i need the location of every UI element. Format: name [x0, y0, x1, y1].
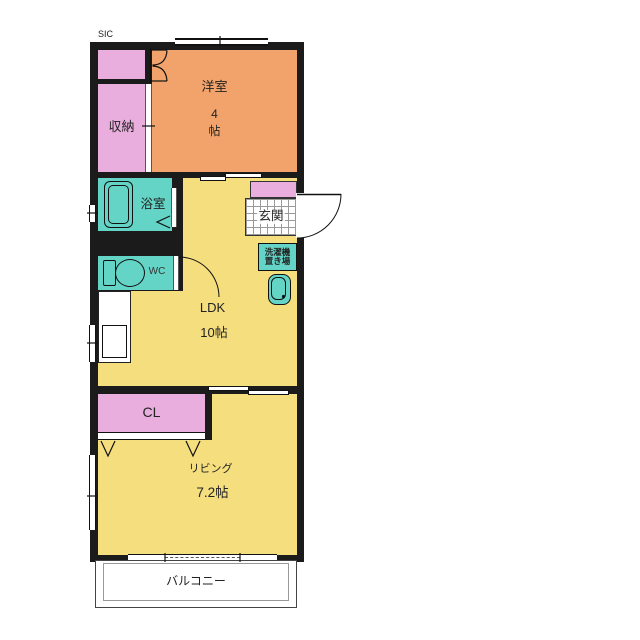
balcony-label: バルコニー: [166, 575, 226, 588]
room-closet: CL: [98, 394, 205, 432]
room-wc: WC: [98, 256, 173, 290]
sic-label: SIC: [98, 30, 132, 40]
room-balcony: バルコニー: [103, 563, 289, 601]
closet-label: CL: [98, 405, 205, 420]
closet-folding-doors: [98, 432, 205, 440]
bathtub-inner: [108, 185, 129, 224]
washbasin-inner: [271, 277, 286, 300]
window-top: [175, 38, 268, 46]
sliding-door-western-panel2: [225, 173, 262, 178]
ldk-size-label: 10帖: [170, 326, 258, 340]
kitchen-counter: [98, 291, 131, 363]
western-room-label: 洋室: [152, 80, 277, 94]
ldk-label: LDK: [170, 301, 255, 315]
bath-label: 浴室: [134, 198, 172, 212]
entrance-label: 玄関: [257, 210, 284, 224]
living-label: リビング: [168, 463, 253, 475]
room-western: 洋室 4 帖: [152, 50, 297, 172]
western-room-size-value: 4: [152, 108, 277, 121]
sliding-door-living-panel2: [248, 390, 289, 395]
wall-closet-side: [205, 386, 212, 440]
wc-label: WC: [144, 266, 170, 277]
wc-door: [173, 256, 179, 290]
window-bath: [89, 205, 96, 222]
room-storage: 収納: [98, 84, 145, 172]
room-bath: 浴室: [98, 178, 172, 231]
bath-door: [171, 188, 177, 227]
room-entrance: 玄関: [245, 198, 297, 236]
window-kitchen: [89, 325, 96, 362]
western-room-size-unit: 帖: [152, 125, 277, 138]
room-sic: [98, 50, 145, 79]
living-size-label: 7.2帖: [170, 486, 255, 501]
toilet-bowl-icon: [115, 259, 145, 287]
washbasin-icon: [268, 274, 291, 305]
kitchen-sink-icon: [102, 325, 127, 358]
storage-label: 収納: [98, 120, 145, 134]
shoe-box: [250, 181, 297, 198]
floor-plan: SIC 収納 洋室 4 帖 浴室 WC 玄関: [0, 0, 640, 640]
sliding-door-living-panel1: [208, 386, 249, 391]
laundry-label-line2: 置き場: [265, 257, 291, 266]
entrance-opening: [296, 193, 305, 238]
window-living: [89, 455, 96, 530]
sliding-window-rail: [165, 557, 240, 558]
sliding-door-western-panel1: [200, 176, 226, 181]
sliding-partition-storage: [145, 84, 152, 172]
laundry-space: 洗濯機 置き場: [258, 243, 297, 271]
